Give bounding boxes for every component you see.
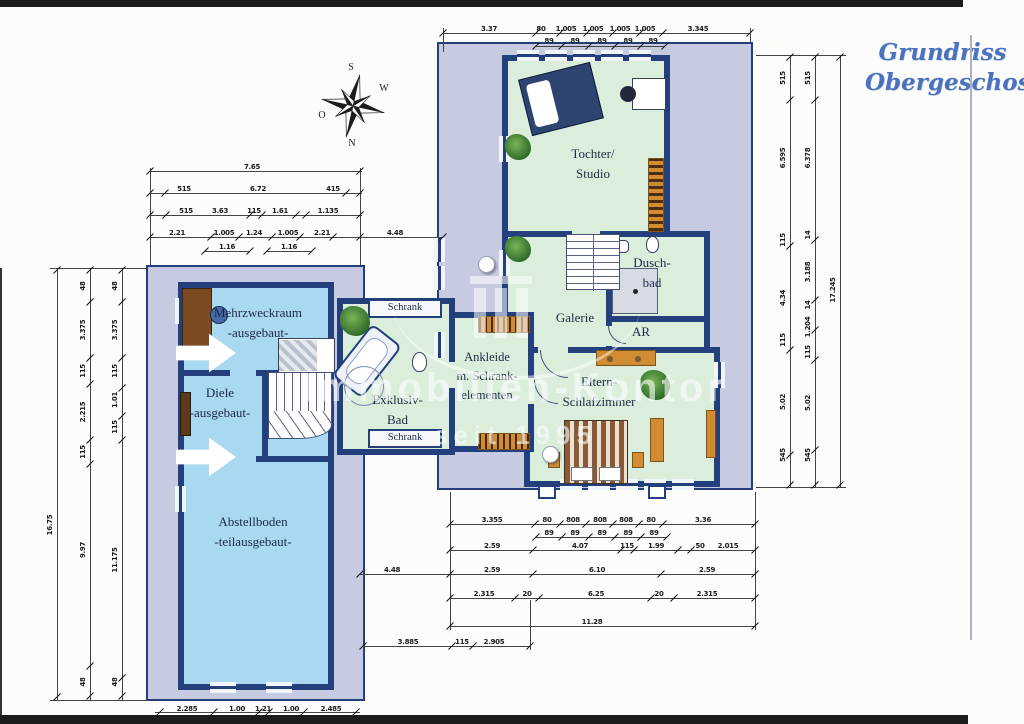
dim-label: 4.07 bbox=[572, 542, 588, 550]
dim-label: 2.21 bbox=[314, 229, 330, 237]
wardrobe-tochter bbox=[648, 158, 664, 232]
dim-label: 115 bbox=[620, 542, 634, 550]
dim-label: 5.02 bbox=[804, 395, 812, 411]
dim-label: 1.00 bbox=[229, 705, 245, 713]
dim-label: 89 bbox=[544, 529, 553, 537]
dim-label: 3.63 bbox=[212, 207, 228, 215]
label-mehrzweckraum: Mehrzweckraum-ausgebaut- bbox=[194, 303, 322, 342]
scan-edge-right bbox=[970, 35, 972, 640]
dim-label: 545 bbox=[804, 448, 812, 462]
scan-edge-top bbox=[0, 0, 963, 7]
plant bbox=[505, 236, 531, 262]
dim-label: 1.99 bbox=[648, 542, 664, 550]
watermark-subtext: seit 1995 bbox=[380, 420, 650, 451]
desk-tochter bbox=[632, 78, 666, 110]
floorplan-page: Schrank Schrank Tochter/Studio Dusch-bad… bbox=[0, 0, 1024, 724]
dim-label: 1.16 bbox=[219, 243, 235, 251]
room-abstellboden bbox=[178, 456, 334, 690]
scan-edge-bottom bbox=[0, 715, 968, 724]
dim-label: 115 bbox=[111, 364, 119, 378]
dim-label: 14 bbox=[804, 300, 812, 309]
scan-edge-left bbox=[0, 268, 2, 715]
label-abstellboden: Abstellboden-teilausgebaut- bbox=[183, 512, 323, 551]
dim-label: 5.02 bbox=[779, 394, 787, 410]
dim-label: 1.005 bbox=[214, 229, 235, 237]
dim-label: 545 bbox=[779, 448, 787, 462]
dim-label: 115 bbox=[779, 233, 787, 247]
dim-label: 89 bbox=[623, 529, 632, 537]
dim-label: 16.75 bbox=[46, 515, 54, 536]
dim-label: 9.97 bbox=[79, 542, 87, 558]
stairs-galerie bbox=[566, 234, 620, 290]
dim-label: 515 bbox=[779, 71, 787, 85]
dim-label: 89 bbox=[623, 37, 632, 45]
dim-label: 1.61 bbox=[272, 207, 288, 215]
label-tochter-studio: Tochter/Studio bbox=[538, 144, 648, 183]
dim-label: 115 bbox=[455, 638, 469, 646]
dim-label: 89 bbox=[648, 37, 657, 45]
dim-label: 3.885 bbox=[398, 638, 419, 646]
dim-label: 80 bbox=[646, 516, 655, 524]
dim-label: 6.595 bbox=[779, 148, 787, 169]
dim-label: 3.37 bbox=[481, 25, 497, 33]
dim-label: 1.135 bbox=[318, 207, 339, 215]
dim-label: 7.65 bbox=[244, 163, 260, 171]
dim-label: 515 bbox=[804, 71, 812, 85]
drawing-title: Grundriss Obergeschoss bbox=[865, 38, 1020, 98]
plant bbox=[505, 134, 531, 160]
dim-label: 20 bbox=[654, 590, 663, 598]
dim-label: 80 bbox=[536, 25, 545, 33]
dim-label: 515 bbox=[177, 185, 191, 193]
dim-label: 89 bbox=[597, 37, 606, 45]
dim-label: 6.72 bbox=[250, 185, 266, 193]
dim-label: 11.175 bbox=[111, 547, 119, 572]
dim-label: 1.005 bbox=[635, 25, 656, 33]
dim-label: 4.48 bbox=[384, 566, 400, 574]
compass-n: N bbox=[348, 138, 355, 148]
dim-label: 2.59 bbox=[484, 566, 500, 574]
chimney bbox=[648, 485, 666, 499]
dim-label: 80 bbox=[542, 516, 551, 524]
dim-label: 1.21 bbox=[255, 705, 271, 713]
dim-label: 48 bbox=[79, 677, 87, 686]
dim-label: 3.375 bbox=[111, 320, 119, 341]
dim-label: 11.28 bbox=[582, 618, 603, 626]
dim-label: 20 bbox=[522, 590, 531, 598]
label-duschbad: Dusch-bad bbox=[618, 253, 686, 292]
cabinet-eltern bbox=[706, 410, 716, 458]
dim-label: 2.215 bbox=[79, 402, 87, 423]
toilet-duschbad bbox=[646, 236, 659, 253]
dim-label: 1.005 bbox=[278, 229, 299, 237]
dim-label: 89 bbox=[597, 529, 606, 537]
dim-label: 3.375 bbox=[79, 320, 87, 341]
dim-label: 89 bbox=[544, 37, 553, 45]
dim-label: 6.25 bbox=[588, 590, 604, 598]
compass-rose-icon: S W O N bbox=[316, 60, 390, 148]
dim-label: 48 bbox=[111, 677, 119, 686]
dim-label: 2.59 bbox=[484, 542, 500, 550]
dim-label: 89 bbox=[570, 529, 579, 537]
dim-label: 1.005 bbox=[610, 25, 631, 33]
compass-o: O bbox=[318, 110, 325, 121]
dim-label: 115 bbox=[804, 345, 812, 359]
dim-label: 115 bbox=[111, 420, 119, 434]
dim-label: 2.285 bbox=[177, 705, 198, 713]
dim-label: 4.48 bbox=[387, 229, 403, 237]
dim-label: 808 bbox=[593, 516, 607, 524]
chair-tochter bbox=[620, 86, 636, 102]
dim-label: 2.905 bbox=[484, 638, 505, 646]
dim-label: 2.015 bbox=[718, 542, 739, 550]
plant bbox=[340, 306, 370, 336]
dim-label: 2.59 bbox=[699, 566, 715, 574]
cabinet-eltern bbox=[650, 418, 664, 462]
dim-label: 2.315 bbox=[474, 590, 495, 598]
dim-label: 1.204 bbox=[804, 317, 812, 338]
dim-label: 3.188 bbox=[804, 262, 812, 283]
dim-label: 17.245 bbox=[829, 277, 837, 302]
dim-label: 1.24 bbox=[246, 229, 262, 237]
dim-label: 1.01 bbox=[111, 392, 119, 408]
dim-label: 1.00 bbox=[283, 705, 299, 713]
dim-label: 3.355 bbox=[482, 516, 503, 524]
dim-label: 2.485 bbox=[321, 705, 342, 713]
dim-label: 6.10 bbox=[589, 566, 605, 574]
dim-label: 2.21 bbox=[169, 229, 185, 237]
dim-label: 6.378 bbox=[804, 148, 812, 169]
dim-label: 50 bbox=[695, 542, 704, 550]
dim-label: 14 bbox=[804, 230, 812, 239]
dim-label: 4.34 bbox=[779, 290, 787, 306]
dim-label: 2.315 bbox=[697, 590, 718, 598]
compass-w: W bbox=[379, 83, 389, 94]
nightstand bbox=[632, 452, 644, 468]
watermark-text: Immobilien-Kontor bbox=[280, 366, 750, 411]
dim-label: 89 bbox=[649, 529, 658, 537]
dim-label: 1.16 bbox=[281, 243, 297, 251]
dim-label: 1.005 bbox=[556, 25, 577, 33]
dim-label: 48 bbox=[111, 281, 119, 290]
dim-label: 48 bbox=[79, 281, 87, 290]
dim-label: 515 bbox=[179, 207, 193, 215]
dim-label: 89 bbox=[570, 37, 579, 45]
dim-label: 3.345 bbox=[688, 25, 709, 33]
dim-label: 115 bbox=[779, 333, 787, 347]
dim-label: 115 bbox=[79, 364, 87, 378]
dim-label: 415 bbox=[326, 185, 340, 193]
dim-label: 115 bbox=[79, 445, 87, 459]
drawing-title-line2: Obergeschoss bbox=[865, 68, 1020, 98]
label-diele: Diele-ausgebaut- bbox=[176, 383, 264, 422]
stairs-diele-fan bbox=[268, 411, 332, 439]
dim-label: 1.005 bbox=[583, 25, 604, 33]
dim-label: 808 bbox=[619, 516, 633, 524]
drawing-title-line1: Grundriss bbox=[865, 38, 1020, 68]
ceiling-lamp bbox=[478, 256, 495, 273]
chimney bbox=[538, 485, 556, 499]
dim-label: 3.36 bbox=[695, 516, 711, 524]
dim-label: 115 bbox=[247, 207, 261, 215]
compass-s: S bbox=[348, 62, 354, 73]
dim-label: 808 bbox=[566, 516, 580, 524]
